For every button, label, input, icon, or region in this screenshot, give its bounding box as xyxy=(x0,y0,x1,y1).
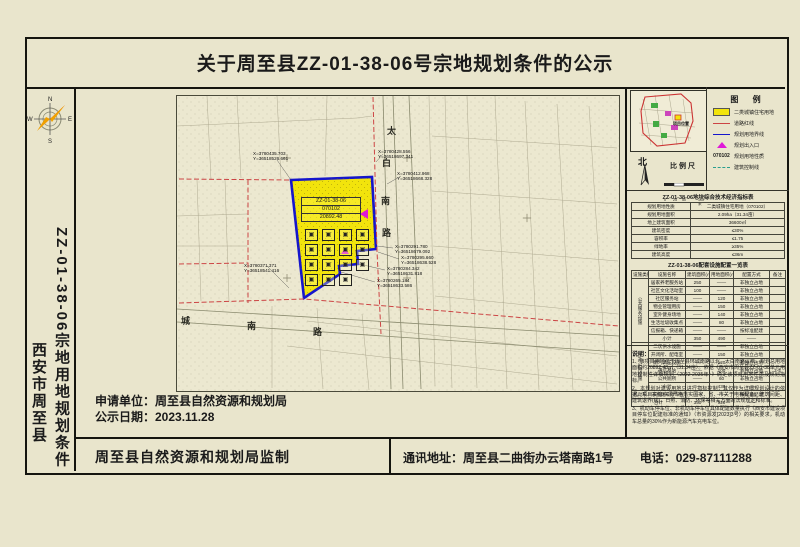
legend-item-label: 规划用地界线 xyxy=(734,131,764,138)
legend-item-label: 道路红线 xyxy=(734,120,754,127)
coordinate-callout: X=3780295.660Y=36518638.528 xyxy=(401,255,436,266)
coordinate-callout: X=3780428.556Y=36518697.341 xyxy=(378,149,413,160)
location-inset-map: 项目位置 xyxy=(630,90,707,152)
svg-text:路: 路 xyxy=(313,326,323,337)
legend-item-label: 建筑控制线 xyxy=(734,164,759,171)
facility-row: 信报箱、快递箱————按标准配建 xyxy=(632,327,786,335)
indicator-table-title: ZZ-01-38-06地块综合技术经济指标表 xyxy=(631,193,785,201)
footer-contact: 通讯地址：周至县二曲街办云塔南路1号 电话：029-87111288 xyxy=(391,449,787,466)
indicator-row: 容积率≤1.75 xyxy=(632,235,785,243)
parcel-label: ZZ-01-38-06 070102 20892.48 xyxy=(301,197,361,222)
title-bar: 关于周至县ZZ-01-38-06号宗地规划条件的公示 xyxy=(25,37,785,89)
svg-text:W: W xyxy=(27,117,33,123)
note-paragraph: 2、本规划对建设用地只进行指标控制，其仅作为详细规划设计的依据。项目实施中须严格… xyxy=(632,386,785,405)
scale-label: 比例尺 xyxy=(670,161,697,171)
facility-symbol-icon: ▣ xyxy=(322,229,335,241)
facility-symbol-icon: ▣ xyxy=(356,229,369,241)
facility-row: 小计350490—— xyxy=(632,335,786,343)
legend-item: 道路红线 xyxy=(713,119,790,127)
facility-symbol-icon: ▣ xyxy=(322,259,335,271)
svg-text:城: 城 xyxy=(181,315,190,326)
sidebar-project-label: ZZ-01-38-06宗地用地规划条件 xyxy=(51,227,72,547)
facility-table-title: ZZ-01-38-06配套设施配置一览表 xyxy=(631,261,785,269)
blue-line-icon xyxy=(713,131,730,138)
indicator-table: 规划用地性质二类城镇住宅用地（070102）规划用地面积2.09ha（31.34… xyxy=(631,202,785,259)
facility-symbol-grid: ▣▣▣▣▣▣▣▣▣▣▣▣▣▣▣ xyxy=(305,229,385,286)
facility-symbol-icon: ▣ xyxy=(356,244,369,256)
legend-item-label: 规划出入口 xyxy=(734,142,759,149)
indicator-table-body: 规划用地性质二类城镇住宅用地（070102）规划用地面积2.09ha（31.34… xyxy=(632,203,785,259)
legend-item: 规划用地界线 xyxy=(713,130,790,138)
facility-row: 室外健身场地——140非独立占地 xyxy=(632,311,786,319)
legend-item-label: 规划用地性质 xyxy=(734,153,764,160)
coordinate-callout: X=3780265.184Y=36518633.586 xyxy=(377,278,412,289)
right-panel: 项目位置 北 比例尺 02550100米 图 例 二类城镇住宅用地道路红线规划用… xyxy=(625,87,789,437)
parcel-code: ZZ-01-38-06 xyxy=(302,198,360,206)
footer-phone: 电话：029-87111288 xyxy=(640,449,752,466)
magenta-triangle-icon xyxy=(713,142,730,149)
coordinate-callout: X=3780412.968Y=36518668.328 xyxy=(397,171,432,182)
indicator-row: 规划用地面积2.09ha（31.34亩） xyxy=(632,211,785,219)
legend-items: 二类城镇住宅用地道路红线规划用地界线规划出入口070102规划用地性质建筑控制线 xyxy=(707,108,790,171)
publish-date-line: 公示日期：2023.11.28 xyxy=(95,409,287,425)
svg-text:南: 南 xyxy=(381,195,390,206)
left-sidebar: N S W E ZZ-01-38-06宗地用地规划条件 西安市周至县 xyxy=(25,87,76,471)
note-paragraph: 3、机动车停车位、非机动车停车位具体配建数量执行《西安市建设项目停车位配建标准的… xyxy=(632,406,785,425)
svg-text:N: N xyxy=(48,97,52,103)
footer-producer: 周至县自然资源和规划局监制 xyxy=(74,447,389,467)
notes-section: 说明： 1、该项目用地位于周至县环城南路以北、太白南路以西，规划总用地面积约20… xyxy=(627,345,789,438)
notes-title: 说明： xyxy=(632,349,785,358)
coordinate-callout: X=3780291.780Y=36518679.092 xyxy=(395,244,430,255)
facility-symbol-icon: ▣ xyxy=(305,244,318,256)
indicator-row: 建筑高度≤36m xyxy=(632,251,785,259)
coordinate-callout: X=3780435.703Y=36518526.661 xyxy=(253,151,288,162)
svg-text:E: E xyxy=(68,117,72,123)
legend-item: 建筑控制线 xyxy=(713,163,790,171)
north-arrow-icon xyxy=(634,163,656,189)
dashed-line-icon xyxy=(713,164,730,171)
north-and-scale: 北 比例尺 02550100米 xyxy=(630,153,705,189)
coordinate-callout: X=3780371.371Y=36518541.416 xyxy=(244,263,279,274)
facility-row: 生活垃圾收集点——80非独立占地 xyxy=(632,319,786,327)
facility-symbol-icon: ▣ xyxy=(339,229,352,241)
facility-symbol-icon: ▣ xyxy=(322,274,335,286)
sidebar-city-label: 西安市周至县 xyxy=(28,342,49,542)
legend-item: 规划出入口 xyxy=(713,141,790,149)
inset-project-location-label: 项目位置 xyxy=(673,121,689,127)
facility-symbol-icon: ▣ xyxy=(339,259,352,271)
facility-symbol-icon: ▣ xyxy=(339,274,352,286)
compass-rose-icon: N S W E xyxy=(27,93,73,145)
yellow-fill-icon xyxy=(713,109,730,116)
note-paragraph: 1、该项目用地位于周至县环城南路以北、太白南路以西，规划总用地面积约20892.… xyxy=(632,359,785,385)
parcel-area: 20892.48 xyxy=(302,214,360,221)
facility-symbol-icon: ▣ xyxy=(305,229,318,241)
facility-row: 社区文化活动室100——非独立占地 xyxy=(632,287,786,295)
facility-row: 社区服务站——120非独立占地 xyxy=(632,295,786,303)
indicator-row: 规划用地性质二类城镇住宅用地（070102） xyxy=(632,203,785,211)
footer-bar: 周至县自然资源和规划局监制 通讯地址：周至县二曲街办云塔南路1号 电话：029-… xyxy=(74,437,787,475)
facility-row: 公共服务设施居家养老服务站250——非独立占地 xyxy=(632,279,786,287)
indicator-row: 绿地率≥35% xyxy=(632,243,785,251)
facility-table-head: 设施类别设施名称建筑面积(㎡)用地面积(㎡)配置方式备注 xyxy=(632,271,786,279)
applicant-line: 申请单位：周至县自然资源和规划局 xyxy=(95,393,287,409)
site-plan-map: 太 白 南 路 城 南 路 ZZ-01-38-06 070102 20892.4… xyxy=(176,95,620,392)
legend: 图 例 二类城镇住宅用地道路红线规划用地界线规划出入口070102规划用地性质建… xyxy=(706,87,790,190)
footer-address: 通讯地址：周至县二曲街办云塔南路1号 xyxy=(403,449,614,466)
red-line-icon xyxy=(713,120,730,127)
facility-symbol-icon: ▣ xyxy=(305,259,318,271)
indicator-row: 建筑密度≤30% xyxy=(632,227,785,235)
facility-symbol-icon: ▣ xyxy=(305,274,318,286)
application-info: 申请单位：周至县自然资源和规划局 公示日期：2023.11.28 xyxy=(95,393,287,425)
legend-item: 二类城镇住宅用地 xyxy=(713,108,790,116)
facility-symbol-icon: ▣ xyxy=(339,244,352,256)
parcel-use-code: 070102 xyxy=(302,206,360,214)
legend-item: 070102规划用地性质 xyxy=(713,152,790,160)
code-text-icon: 070102 xyxy=(713,153,730,160)
facility-row: 物业管理用房——150非独立占地 xyxy=(632,303,786,311)
svg-text:南: 南 xyxy=(247,320,256,331)
legend-item-label: 二类城镇住宅用地 xyxy=(734,109,774,116)
notes-paragraphs: 1、该项目用地位于周至县环城南路以北、太白南路以西，规划总用地面积约20892.… xyxy=(632,359,785,425)
facility-symbol-icon: ▣ xyxy=(356,259,369,271)
coordinate-callout: X=3780284.342Y=36518631.818 xyxy=(387,266,422,277)
legend-title: 图 例 xyxy=(707,94,790,105)
indicator-row: 地上建筑面积36600㎡ xyxy=(632,219,785,227)
svg-text:S: S xyxy=(48,139,52,145)
facility-symbol-icon: ▣ xyxy=(322,244,335,256)
page-title: 关于周至县ZZ-01-38-06号宗地规划条件的公示 xyxy=(197,49,614,76)
svg-text:太: 太 xyxy=(386,125,397,136)
inset-map-drawing xyxy=(631,91,704,149)
